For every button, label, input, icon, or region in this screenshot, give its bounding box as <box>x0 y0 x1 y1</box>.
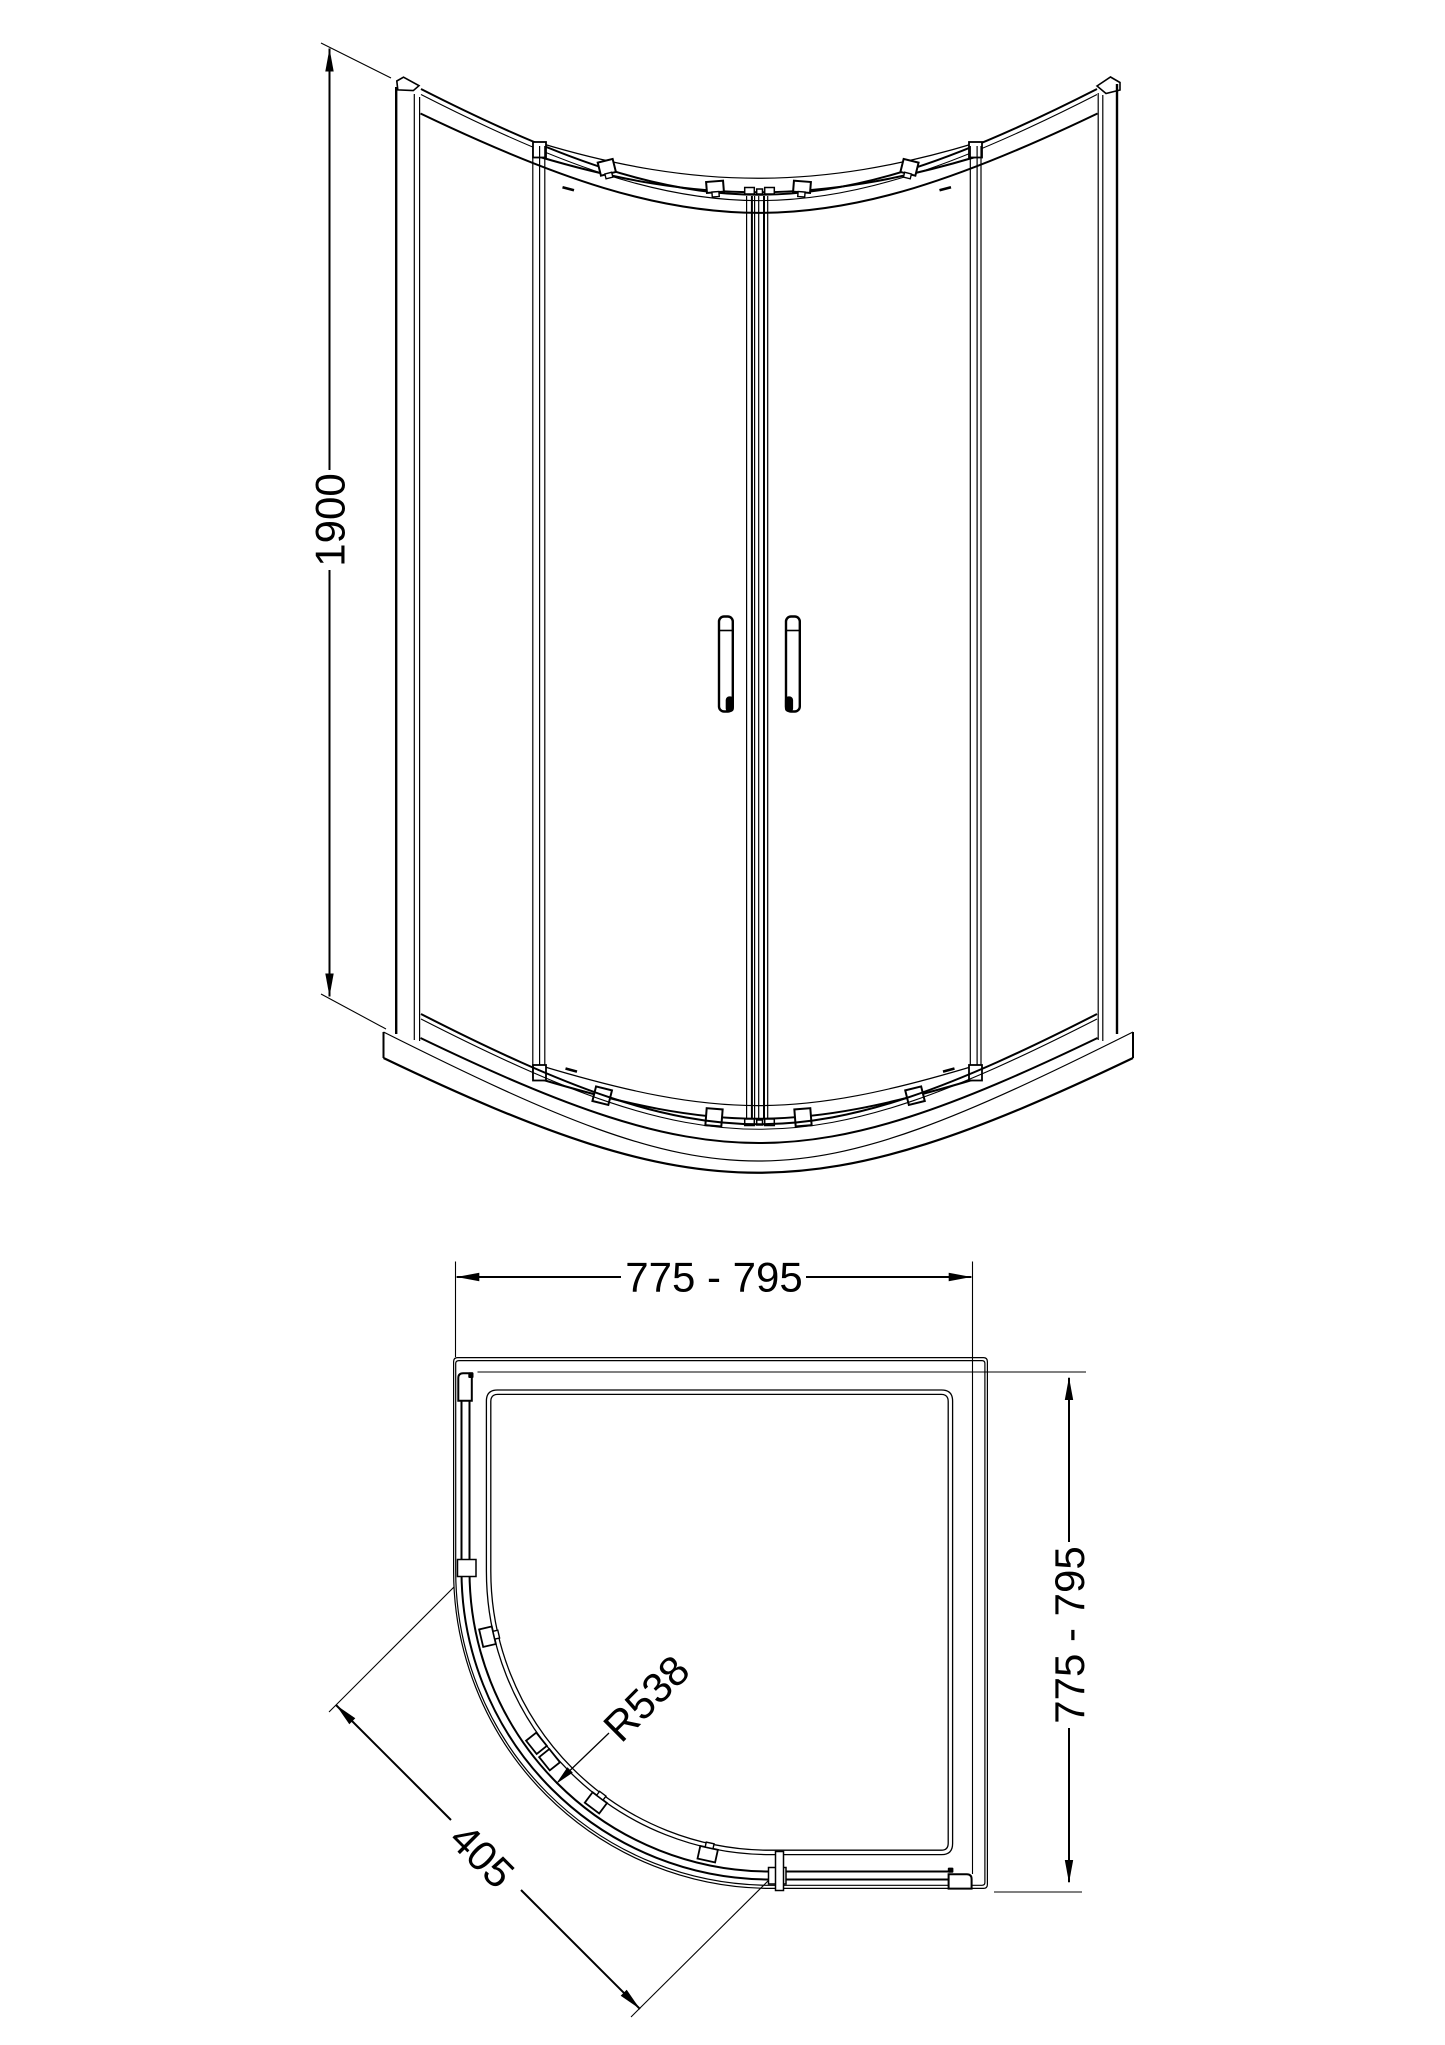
svg-text:775 - 795: 775 - 795 <box>625 1253 802 1300</box>
svg-text:1900: 1900 <box>306 473 353 566</box>
svg-text:775 - 795: 775 - 795 <box>1046 1546 1093 1723</box>
